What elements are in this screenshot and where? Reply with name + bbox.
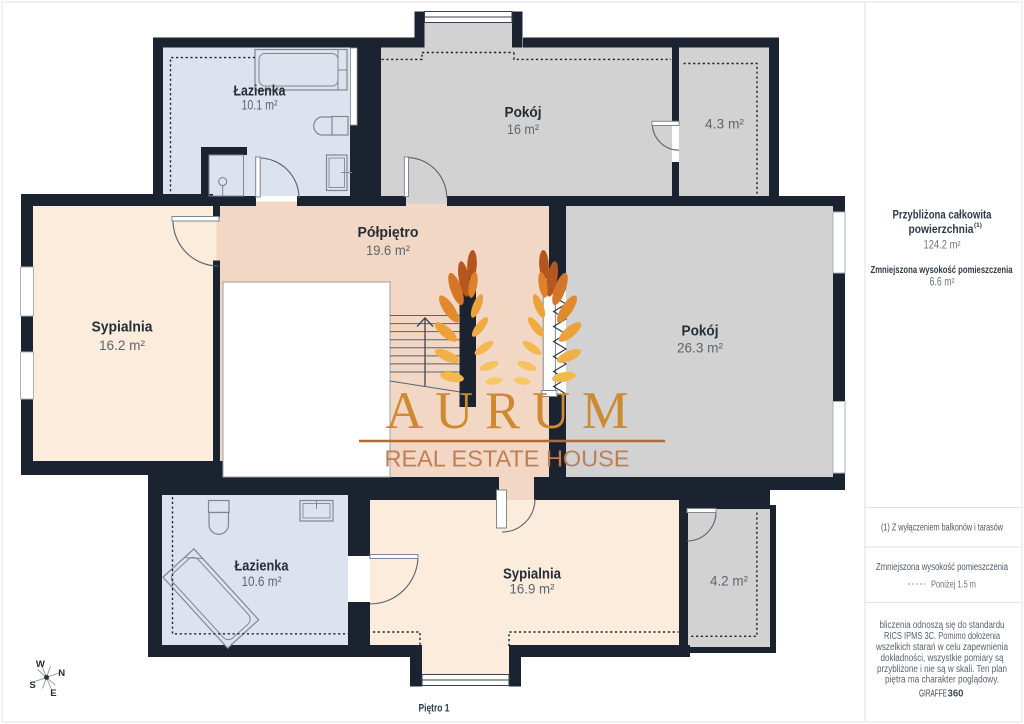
svg-text:16.9 m²: 16.9 m² — [510, 581, 555, 597]
svg-text:powierzchnia: powierzchnia — [909, 222, 974, 236]
svg-text:GIRAFFE: GIRAFFE — [919, 688, 947, 700]
svg-text:19.6 m²: 19.6 m² — [366, 242, 410, 258]
svg-text:przybliżone i nie są w skali.: przybliżone i nie są w skali. Ten plan — [877, 664, 1007, 675]
svg-text:Piętro 1: Piętro 1 — [419, 703, 450, 715]
svg-text:Sypialnia: Sypialnia — [92, 320, 154, 336]
svg-text:16.2 m²: 16.2 m² — [99, 337, 145, 353]
svg-text:16 m²: 16 m² — [507, 121, 539, 137]
svg-text:Pokój: Pokój — [682, 324, 719, 340]
svg-text:Pokój: Pokój — [505, 105, 542, 121]
svg-text:piętra ma charakter poglądowy.: piętra ma charakter poglądowy. — [885, 675, 999, 686]
svg-text:Zmniejszona wysokość pomieszcz: Zmniejszona wysokość pomieszczenia — [876, 562, 1008, 573]
svg-text:10.6 m²: 10.6 m² — [242, 573, 282, 589]
svg-text:N: N — [58, 668, 65, 679]
svg-text:dokładności, wszystkie pomiary: dokładności, wszystkie pomiary są — [881, 653, 1004, 664]
svg-text:(1): (1) — [974, 222, 982, 229]
svg-text:(1) Z wyłączeniem balkonów i t: (1) Z wyłączeniem balkonów i tarasów — [881, 523, 1004, 534]
svg-text:4.2 m²: 4.2 m² — [710, 573, 748, 589]
svg-text:E: E — [50, 688, 56, 699]
svg-text:10.1 m²: 10.1 m² — [242, 97, 278, 113]
svg-text:6.6 m²: 6.6 m² — [930, 277, 955, 289]
svg-text:124.2 m²: 124.2 m² — [924, 240, 961, 252]
svg-text:360: 360 — [948, 688, 964, 700]
svg-text:RICS IPMS 3C. Pomimo dołożenia: RICS IPMS 3C. Pomimo dołożenia — [884, 631, 1000, 642]
svg-text:AURUM: AURUM — [386, 382, 629, 440]
svg-text:Przybliżona całkowita: Przybliżona całkowita — [893, 208, 992, 222]
svg-text:wszelkich starań w celu zapewn: wszelkich starań w celu zapewnienia — [875, 642, 1008, 653]
svg-text:S: S — [29, 680, 35, 691]
svg-text:Półpiętro: Półpiętro — [358, 225, 419, 241]
svg-text:Poniżej 1.5 m: Poniżej 1.5 m — [931, 580, 976, 591]
svg-text:4.3 m²: 4.3 m² — [705, 116, 744, 132]
svg-text:REAL ESTATE HOUSE: REAL ESTATE HOUSE — [385, 446, 630, 472]
svg-text:Zmniejszona wysokość pomieszcz: Zmniejszona wysokość pomieszczenia — [871, 264, 1013, 276]
svg-text:bliczenia odnoszą się do stand: bliczenia odnoszą się do standardu — [880, 620, 1005, 631]
svg-text:W: W — [36, 659, 45, 670]
svg-text:26.3 m²: 26.3 m² — [677, 340, 723, 356]
